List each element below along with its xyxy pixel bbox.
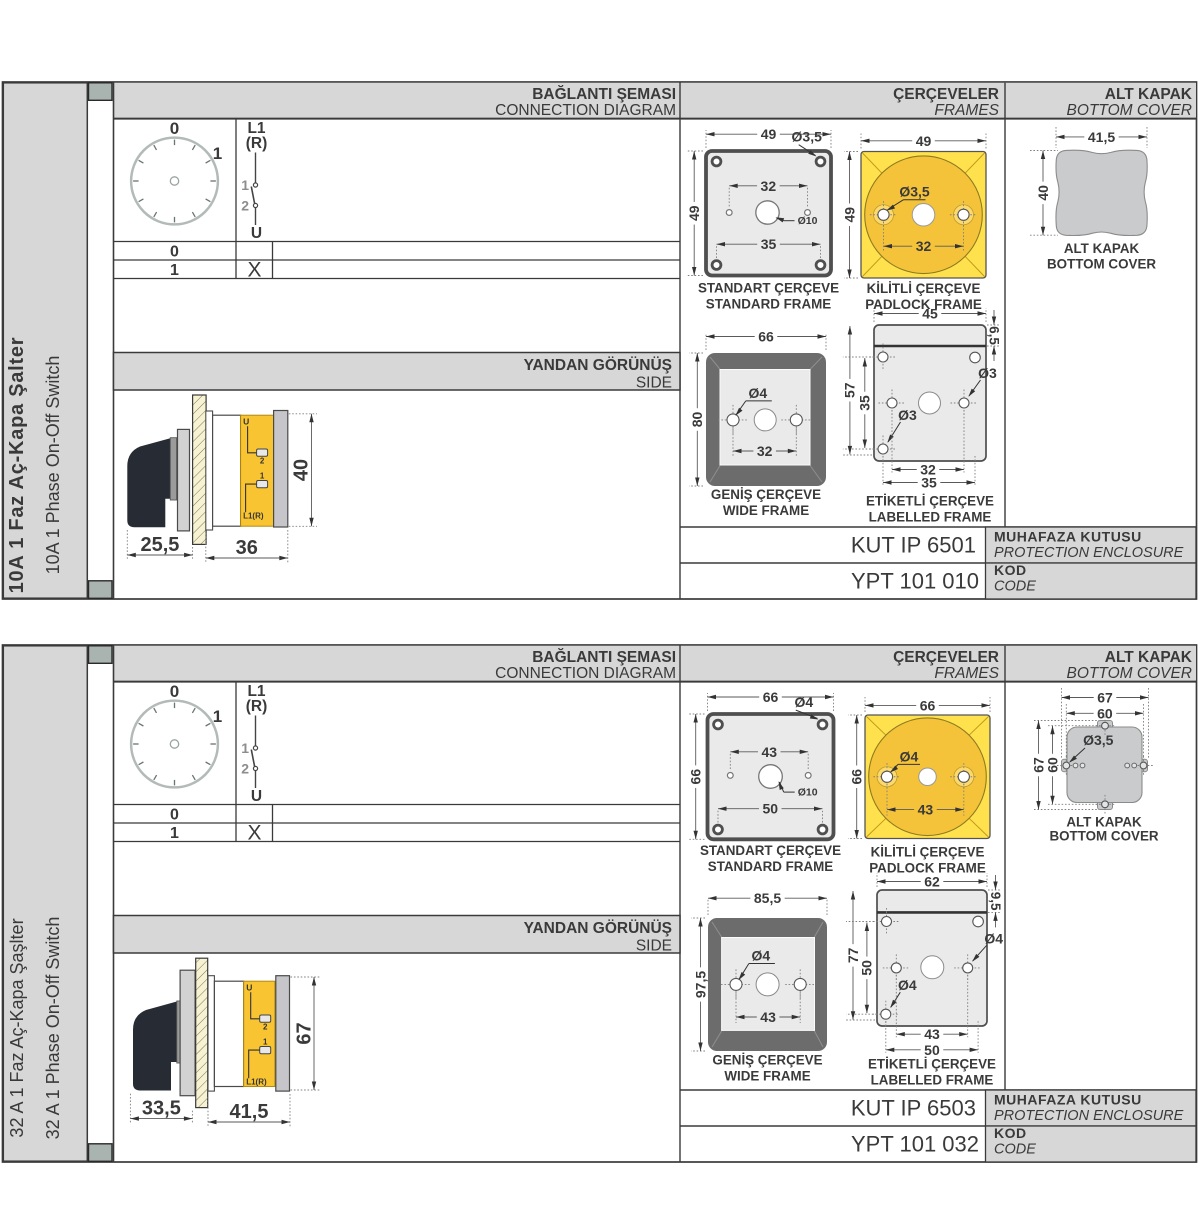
svg-text:ALT KAPAK: ALT KAPAK bbox=[1064, 241, 1140, 256]
svg-text:66: 66 bbox=[758, 329, 774, 345]
svg-text:YANDAN GÖRÜNÜŞ: YANDAN GÖRÜNÜŞ bbox=[524, 357, 672, 374]
svg-text:Ø3: Ø3 bbox=[898, 407, 917, 423]
svg-text:KUT IP 6503: KUT IP 6503 bbox=[851, 1096, 976, 1121]
svg-text:X: X bbox=[247, 259, 261, 282]
svg-text:SIDE: SIDE bbox=[636, 375, 672, 392]
svg-text:Ø3,5: Ø3,5 bbox=[1083, 732, 1114, 748]
svg-text:1: 1 bbox=[241, 177, 249, 193]
svg-text:1: 1 bbox=[213, 707, 222, 726]
svg-text:2: 2 bbox=[241, 198, 249, 214]
svg-text:49: 49 bbox=[916, 133, 932, 149]
svg-text:BOTTOM COVER: BOTTOM COVER bbox=[1067, 665, 1192, 682]
svg-text:32 A 1 Faz Aç-Kapa Şaşlter: 32 A 1 Faz Aç-Kapa Şaşlter bbox=[7, 918, 27, 1137]
svg-text:36: 36 bbox=[236, 537, 258, 559]
svg-text:Ø4: Ø4 bbox=[984, 930, 1003, 946]
svg-text:WIDE FRAME: WIDE FRAME bbox=[723, 503, 809, 518]
svg-text:43: 43 bbox=[760, 1009, 776, 1025]
svg-text:YPT 101 010: YPT 101 010 bbox=[851, 569, 979, 594]
svg-text:32: 32 bbox=[757, 443, 773, 459]
svg-text:1: 1 bbox=[241, 740, 249, 756]
svg-text:1: 1 bbox=[260, 472, 265, 481]
svg-text:ETİKETLİ ÇERÇEVE: ETİKETLİ ÇERÇEVE bbox=[866, 494, 994, 509]
svg-text:Ø3: Ø3 bbox=[978, 365, 997, 381]
svg-text:(R): (R) bbox=[246, 135, 268, 152]
svg-text:9,5: 9,5 bbox=[988, 892, 1003, 911]
svg-text:41,5: 41,5 bbox=[230, 1101, 269, 1123]
svg-text:6,5: 6,5 bbox=[987, 326, 1002, 345]
svg-text:0: 0 bbox=[170, 807, 179, 824]
svg-text:YANDAN GÖRÜNÜŞ: YANDAN GÖRÜNÜŞ bbox=[524, 920, 672, 937]
svg-text:KOD: KOD bbox=[994, 1125, 1027, 1141]
svg-text:62: 62 bbox=[924, 874, 940, 890]
svg-text:GENİŞ ÇERÇEVE: GENİŞ ÇERÇEVE bbox=[711, 487, 821, 502]
svg-text:Ø4: Ø4 bbox=[794, 694, 813, 710]
svg-text:(R): (R) bbox=[246, 698, 268, 715]
svg-text:41,5: 41,5 bbox=[1088, 129, 1115, 145]
svg-text:U: U bbox=[251, 788, 262, 805]
svg-text:STANDARD FRAME: STANDARD FRAME bbox=[706, 296, 832, 311]
svg-text:BAĞLANTI ŞEMASI: BAĞLANTI ŞEMASI bbox=[532, 85, 676, 103]
svg-text:MUHAFAZA KUTUSU: MUHAFAZA KUTUSU bbox=[994, 1092, 1142, 1108]
svg-text:43: 43 bbox=[924, 1026, 940, 1042]
svg-text:CODE: CODE bbox=[994, 579, 1036, 595]
svg-text:Ø10: Ø10 bbox=[798, 787, 818, 799]
svg-text:STANDART ÇERÇEVE: STANDART ÇERÇEVE bbox=[700, 843, 841, 858]
svg-text:LABELLED FRAME: LABELLED FRAME bbox=[871, 1072, 994, 1087]
svg-text:49: 49 bbox=[841, 207, 857, 223]
svg-text:60: 60 bbox=[1097, 705, 1113, 721]
svg-text:67: 67 bbox=[1097, 690, 1113, 706]
svg-text:66: 66 bbox=[763, 689, 779, 705]
svg-text:33,5: 33,5 bbox=[142, 1098, 181, 1120]
svg-text:U: U bbox=[251, 225, 262, 242]
svg-text:32: 32 bbox=[916, 238, 932, 254]
svg-text:40: 40 bbox=[1035, 185, 1051, 201]
svg-text:45: 45 bbox=[922, 306, 938, 322]
svg-text:CODE: CODE bbox=[994, 1142, 1036, 1158]
svg-text:SIDE: SIDE bbox=[636, 938, 672, 955]
svg-text:66: 66 bbox=[920, 697, 936, 713]
svg-text:ALT KAPAK: ALT KAPAK bbox=[1066, 815, 1142, 830]
svg-text:57: 57 bbox=[842, 382, 858, 398]
svg-text:U: U bbox=[243, 417, 249, 427]
svg-text:ALT KAPAK: ALT KAPAK bbox=[1105, 86, 1193, 103]
svg-text:BOTTOM COVER: BOTTOM COVER bbox=[1049, 829, 1158, 844]
svg-text:WIDE FRAME: WIDE FRAME bbox=[724, 1068, 810, 1083]
svg-text:ÇERÇEVELER: ÇERÇEVELER bbox=[893, 86, 999, 103]
svg-text:MUHAFAZA KUTUSU: MUHAFAZA KUTUSU bbox=[994, 529, 1142, 545]
svg-text:CONNECTION DIAGRAM: CONNECTION DIAGRAM bbox=[495, 665, 676, 682]
svg-text:ALT KAPAK: ALT KAPAK bbox=[1105, 649, 1193, 666]
svg-text:Ø4: Ø4 bbox=[748, 385, 767, 401]
svg-text:L1(R): L1(R) bbox=[243, 512, 264, 521]
svg-text:10A 1 Phase On-Off Switch: 10A 1 Phase On-Off Switch bbox=[43, 356, 63, 575]
svg-text:1: 1 bbox=[170, 262, 179, 279]
svg-text:Ø3,5: Ø3,5 bbox=[792, 129, 823, 145]
svg-text:2: 2 bbox=[263, 1023, 268, 1032]
svg-text:32: 32 bbox=[761, 178, 777, 194]
svg-text:STANDARD FRAME: STANDARD FRAME bbox=[708, 859, 834, 874]
svg-text:KUT IP 6501: KUT IP 6501 bbox=[851, 533, 976, 558]
svg-text:Ø3,5: Ø3,5 bbox=[899, 184, 930, 200]
svg-text:35: 35 bbox=[857, 395, 873, 411]
svg-text:BOTTOM COVER: BOTTOM COVER bbox=[1067, 102, 1192, 119]
svg-text:0: 0 bbox=[170, 244, 179, 261]
svg-text:35: 35 bbox=[761, 236, 777, 252]
svg-text:50: 50 bbox=[859, 960, 875, 976]
svg-text:Ø4: Ø4 bbox=[898, 977, 917, 993]
svg-text:49: 49 bbox=[686, 205, 702, 221]
svg-text:50: 50 bbox=[762, 801, 778, 817]
svg-text:43: 43 bbox=[918, 802, 934, 818]
svg-text:Ø4: Ø4 bbox=[900, 748, 919, 764]
svg-text:43: 43 bbox=[761, 744, 777, 760]
svg-text:1: 1 bbox=[263, 1038, 268, 1047]
svg-text:KİLİTLİ ÇERÇEVE: KİLİTLİ ÇERÇEVE bbox=[871, 845, 985, 860]
svg-text:ETİKETLİ ÇERÇEVE: ETİKETLİ ÇERÇEVE bbox=[868, 1057, 996, 1072]
svg-text:25,5: 25,5 bbox=[140, 534, 179, 556]
svg-text:BOTTOM COVER: BOTTOM COVER bbox=[1047, 257, 1156, 272]
svg-text:66: 66 bbox=[688, 769, 704, 785]
svg-text:KİLİTLİ ÇERÇEVE: KİLİTLİ ÇERÇEVE bbox=[867, 281, 981, 296]
svg-text:Ø4: Ø4 bbox=[752, 948, 771, 964]
svg-text:CONNECTION DIAGRAM: CONNECTION DIAGRAM bbox=[495, 102, 676, 119]
svg-text:49: 49 bbox=[761, 126, 777, 142]
svg-text:FRAMES: FRAMES bbox=[934, 102, 999, 119]
svg-text:STANDART ÇERÇEVE: STANDART ÇERÇEVE bbox=[698, 281, 839, 296]
svg-text:80: 80 bbox=[689, 412, 705, 428]
svg-text:1: 1 bbox=[213, 144, 222, 163]
svg-text:FRAMES: FRAMES bbox=[934, 665, 999, 682]
svg-text:0: 0 bbox=[170, 682, 179, 701]
svg-text:1: 1 bbox=[170, 825, 179, 842]
svg-text:60: 60 bbox=[1044, 757, 1060, 773]
svg-text:2: 2 bbox=[241, 761, 249, 777]
svg-text:66: 66 bbox=[849, 769, 865, 785]
svg-text:2: 2 bbox=[260, 457, 265, 466]
svg-text:GENİŞ ÇERÇEVE: GENİŞ ÇERÇEVE bbox=[712, 1053, 822, 1068]
svg-text:ÇERÇEVELER: ÇERÇEVELER bbox=[893, 649, 999, 666]
svg-text:97,5: 97,5 bbox=[692, 971, 708, 998]
svg-text:85,5: 85,5 bbox=[754, 890, 781, 906]
svg-text:YPT 101 032: YPT 101 032 bbox=[851, 1132, 979, 1157]
svg-text:0: 0 bbox=[170, 119, 179, 138]
svg-text:PROTECTION ENCLOSURE: PROTECTION ENCLOSURE bbox=[994, 545, 1184, 561]
svg-text:35: 35 bbox=[921, 475, 937, 491]
svg-text:U: U bbox=[246, 983, 252, 993]
svg-text:KOD: KOD bbox=[994, 562, 1027, 578]
svg-text:PROTECTION ENCLOSURE: PROTECTION ENCLOSURE bbox=[994, 1108, 1184, 1124]
svg-text:50: 50 bbox=[924, 1042, 940, 1058]
svg-text:67: 67 bbox=[294, 1022, 316, 1044]
svg-text:L1(R): L1(R) bbox=[246, 1078, 267, 1087]
svg-text:X: X bbox=[247, 822, 261, 845]
svg-text:BAĞLANTI ŞEMASI: BAĞLANTI ŞEMASI bbox=[532, 648, 676, 666]
svg-text:Ø10: Ø10 bbox=[798, 215, 818, 227]
svg-text:LABELLED FRAME: LABELLED FRAME bbox=[869, 509, 992, 524]
svg-text:32 A 1 Phase On-Off Switch: 32 A 1 Phase On-Off Switch bbox=[43, 917, 63, 1140]
svg-text:10A 1 Faz Aç-Kapa Şalter: 10A 1 Faz Aç-Kapa Şalter bbox=[6, 337, 28, 594]
svg-text:40: 40 bbox=[291, 459, 313, 481]
